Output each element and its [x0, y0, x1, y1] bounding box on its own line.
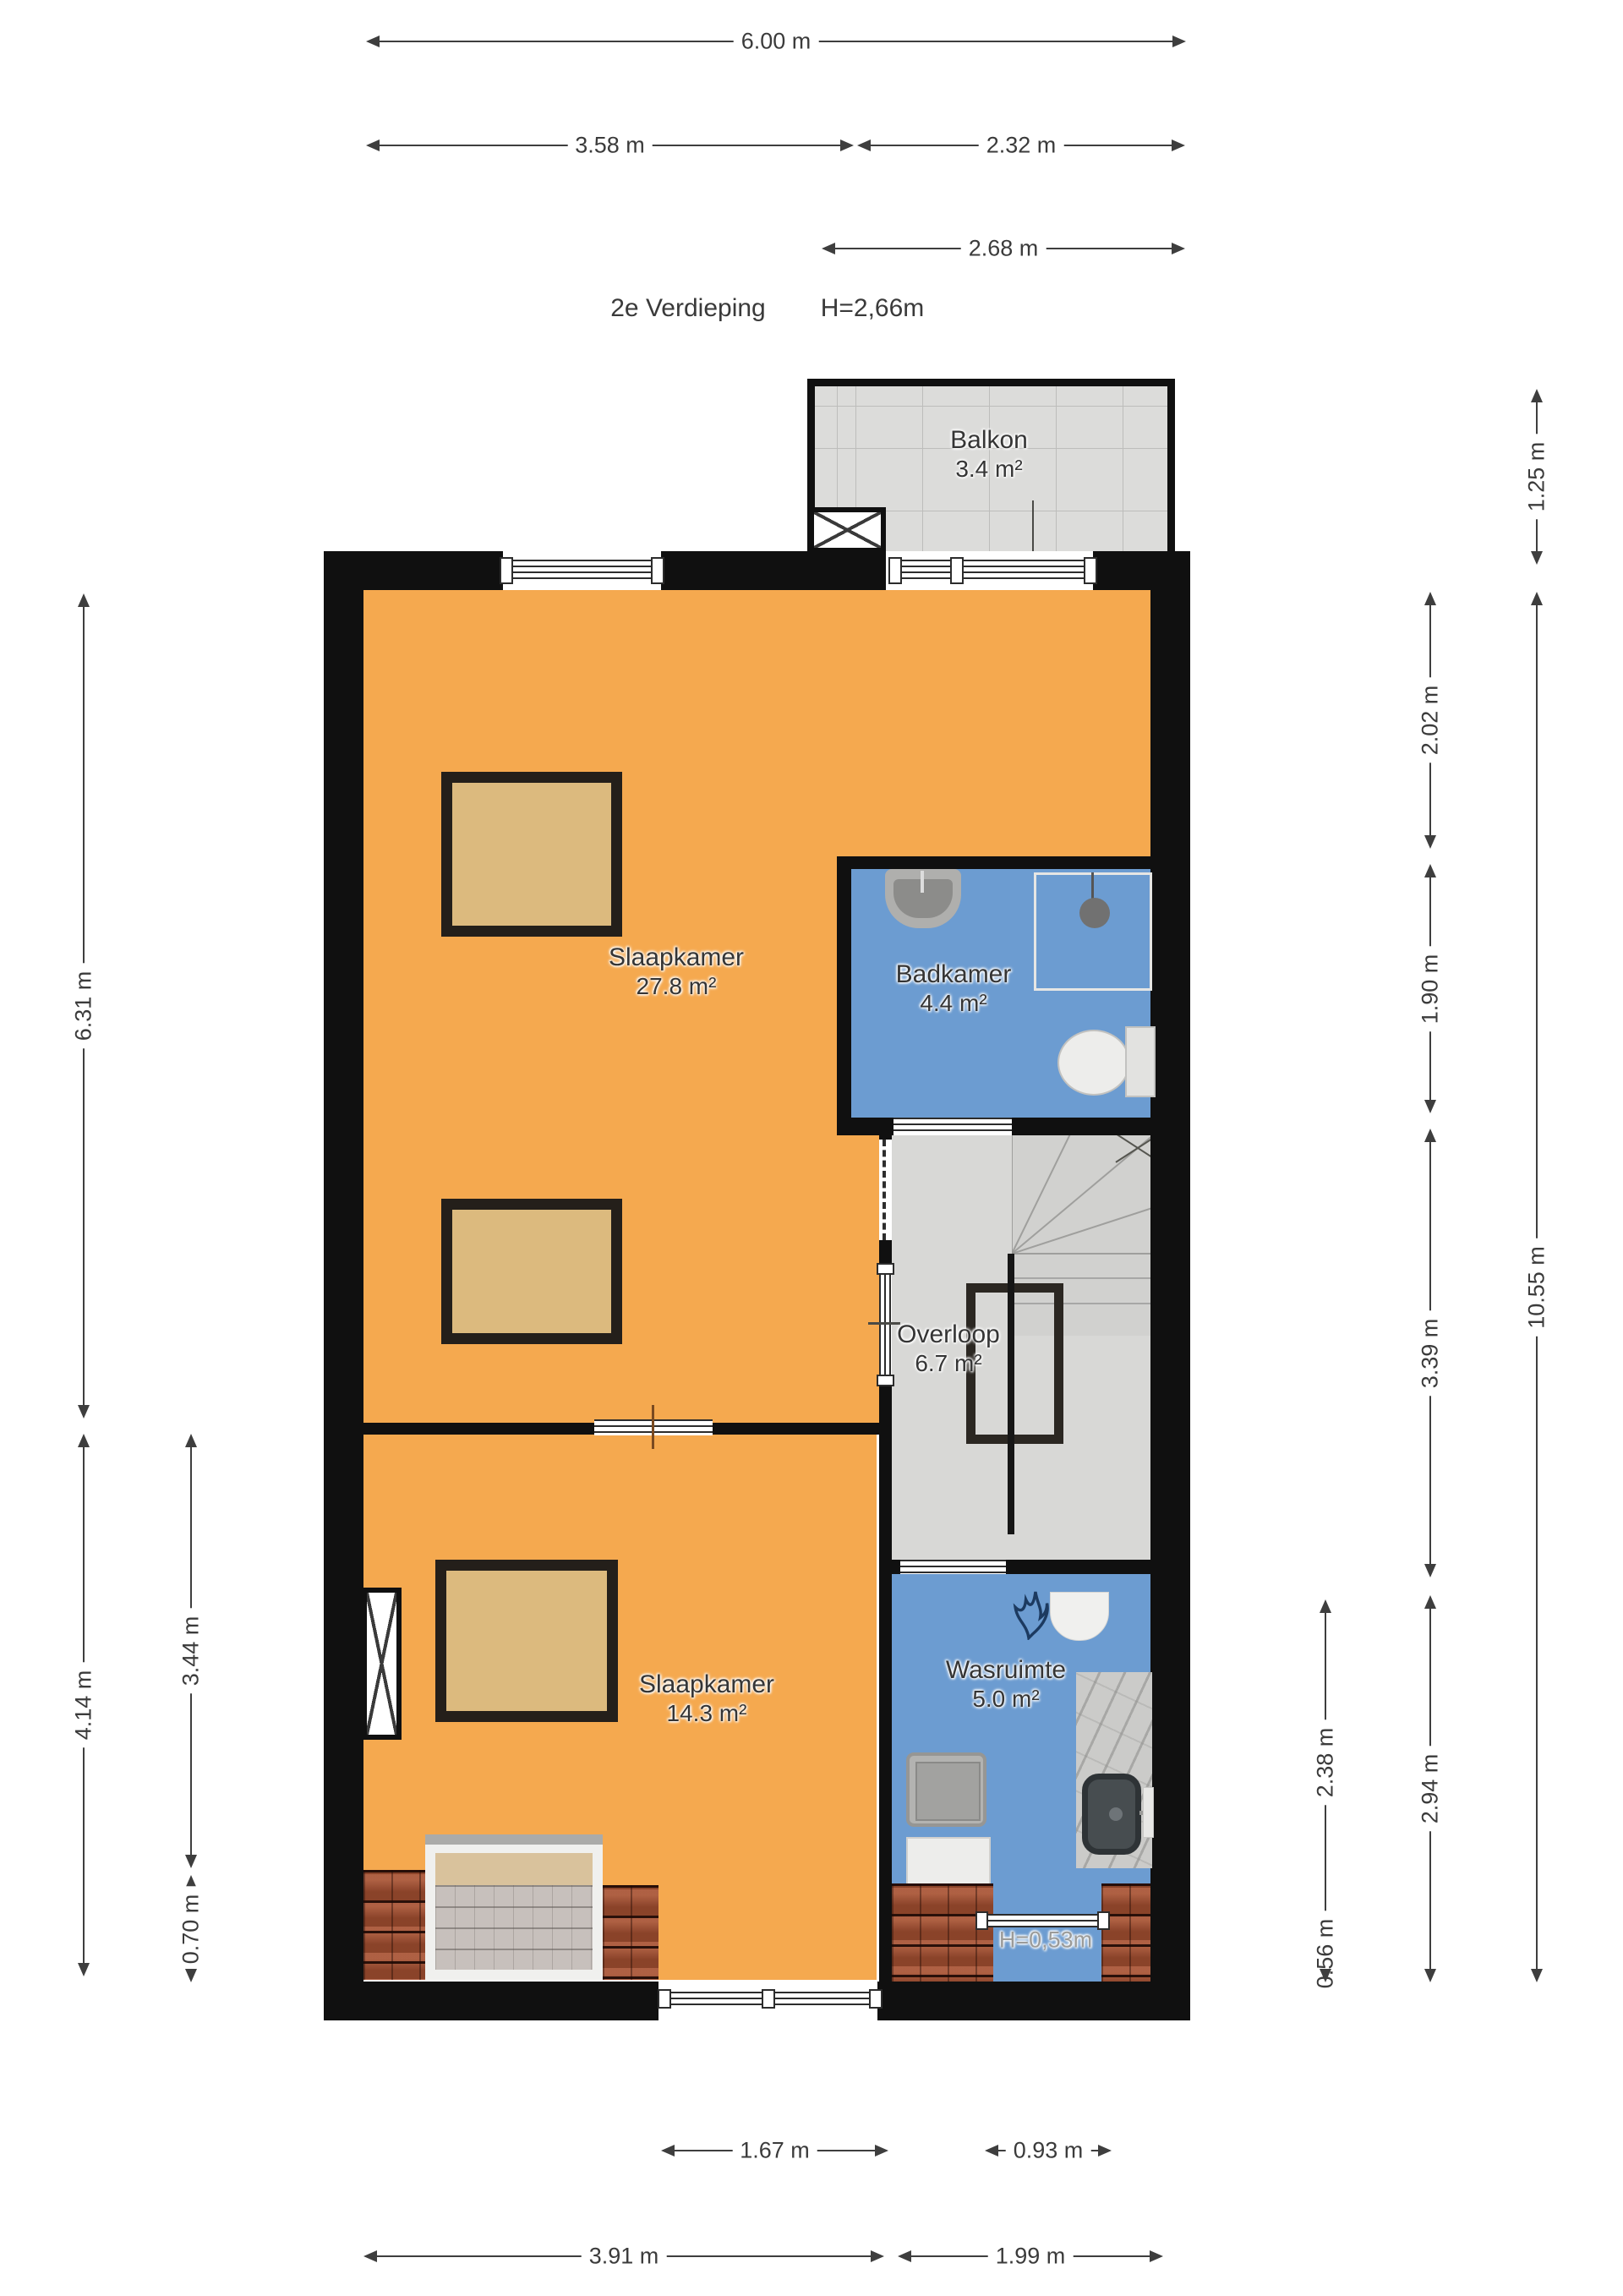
toilet-tank — [1125, 1026, 1156, 1097]
room-name: Badkamer — [896, 960, 1012, 989]
room-label-overloop: Overloop 6.7 m² — [897, 1320, 1000, 1378]
room-area: 14.3 m² — [639, 1699, 774, 1728]
room-name: Balkon — [950, 426, 1028, 455]
dim-bottom-window2: 0.93 m — [985, 2141, 1112, 2160]
dim-right-7: 0.56 m — [1316, 1925, 1335, 1982]
sink-tap — [921, 871, 924, 893]
room-label-wasruimte: Wasruimte 5.0 m² — [946, 1656, 1066, 1714]
stair-tread — [1012, 1135, 1013, 1254]
bed — [441, 772, 622, 937]
room-label-badkamer: Badkamer 4.4 m² — [896, 960, 1012, 1018]
dim-left-lower: 4.14 m — [74, 1434, 93, 1976]
shower-drain — [1079, 898, 1110, 928]
room-name: Slaapkamer — [639, 1670, 774, 1699]
window-cap — [869, 1989, 883, 2009]
floorplan-page: { "title": {"floor": "2e Verdieping", "c… — [0, 0, 1623, 2296]
window-cap — [658, 1989, 671, 2009]
room-label-slaapkamer2: Slaapkamer 14.3 m² — [639, 1670, 774, 1728]
window-top-left — [503, 560, 661, 582]
window-cap — [1097, 1911, 1110, 1930]
bathroom-wall-top — [837, 856, 1152, 869]
dim-left-inner-lower: 0.70 m — [182, 1875, 200, 1982]
window-cap — [975, 1911, 988, 1930]
bed — [435, 1560, 618, 1722]
room-name: Wasruimte — [946, 1656, 1066, 1685]
window-mullion — [762, 1989, 775, 2009]
room-area: 27.8 m² — [609, 972, 744, 1001]
stair-tread — [1012, 1135, 1098, 1254]
room-area: 3.4 m² — [950, 455, 1028, 484]
room-name: Overloop — [897, 1320, 1000, 1349]
room-name: Slaapkamer — [609, 943, 744, 972]
washing-machine-lid — [915, 1762, 981, 1821]
dim-bottom-window1: 1.67 m — [661, 2141, 888, 2160]
room-area: 6.7 m² — [897, 1349, 1000, 1378]
stair-tread — [1012, 1253, 1150, 1255]
laundry-door — [900, 1560, 1006, 1574]
bed — [441, 1199, 622, 1344]
dim-bottom-right-width: 1.99 m — [898, 2247, 1163, 2266]
stair-rail — [1008, 1254, 1014, 1534]
dim-right-total-height: 10.55 m — [1527, 592, 1546, 1982]
window-cap — [1084, 557, 1097, 584]
window-cap — [877, 1263, 894, 1275]
window-top-right — [892, 560, 1090, 582]
floor-title: 2e Verdieping — [610, 294, 766, 323]
stair-tread — [1012, 1277, 1150, 1279]
dim-right-2: 1.90 m — [1421, 864, 1440, 1113]
toilet-bowl — [1057, 1030, 1130, 1096]
room-area: 4.4 m² — [896, 989, 1012, 1018]
door-swing-dashed — [883, 1140, 886, 1240]
dim-top-total-width: 6.00 m — [366, 32, 1186, 51]
dim-right-1: 2.02 m — [1421, 592, 1440, 849]
roof-tiles — [363, 1870, 425, 1980]
dim-left-inner-upper: 3.44 m — [182, 1434, 200, 1868]
dim-right-6: 2.94 m — [1421, 1595, 1440, 1982]
bathroom-door — [893, 1118, 1012, 1135]
balcony-wall-right — [1167, 379, 1175, 554]
window-cap — [651, 557, 664, 584]
dim-left-upper: 6.31 m — [74, 593, 93, 1419]
skylight-upper-pane — [435, 1853, 593, 1885]
window-cap — [888, 557, 902, 584]
plant-icon — [1008, 1586, 1050, 1640]
roof-tiles — [892, 1883, 993, 1982]
window-cap — [877, 1375, 894, 1386]
laundry-window — [979, 1914, 1101, 1927]
roof-tiles — [603, 1885, 658, 1980]
outer-wall-right — [1150, 551, 1190, 2020]
balcony-wall-top — [807, 379, 1175, 386]
room-label-balkon: Balkon 3.4 m² — [950, 426, 1028, 484]
shaft-cross-box — [809, 507, 886, 553]
dim-bottom-left-width: 3.91 m — [363, 2247, 884, 2266]
dim-right-5: 2.38 m — [1316, 1599, 1335, 1925]
dim-right-3: 3.39 m — [1421, 1129, 1440, 1577]
stair-tread — [1012, 1193, 1150, 1255]
ceiling-height-label: H=2,66m — [821, 294, 925, 323]
bathroom-wall-left — [837, 856, 851, 1135]
dim-top-left-width: 3.58 m — [366, 136, 854, 155]
skylight-glass — [435, 1885, 593, 1970]
side-window — [367, 1593, 396, 1735]
dim-top-right-width: 2.32 m — [857, 136, 1185, 155]
dim-balcony-width: 2.68 m — [822, 239, 1185, 258]
room-label-slaapkamer1: Slaapkamer 27.8 m² — [609, 943, 744, 1001]
skylight-top-bar — [425, 1834, 603, 1845]
dim-balcony-depth: 1.25 m — [1527, 389, 1546, 565]
outer-wall-left — [324, 551, 363, 2020]
roof-tiles — [1101, 1883, 1150, 1982]
low-ceiling-note: H=0,53m — [999, 1927, 1092, 1954]
divider-tick — [652, 1405, 654, 1449]
window-mullion — [950, 557, 964, 584]
landing-leader-line — [868, 1322, 900, 1325]
room-area: 5.0 m² — [946, 1685, 1066, 1714]
laundry-sink-drain — [1109, 1807, 1123, 1821]
soap-tray — [1143, 1787, 1154, 1838]
window-cap — [500, 557, 513, 584]
